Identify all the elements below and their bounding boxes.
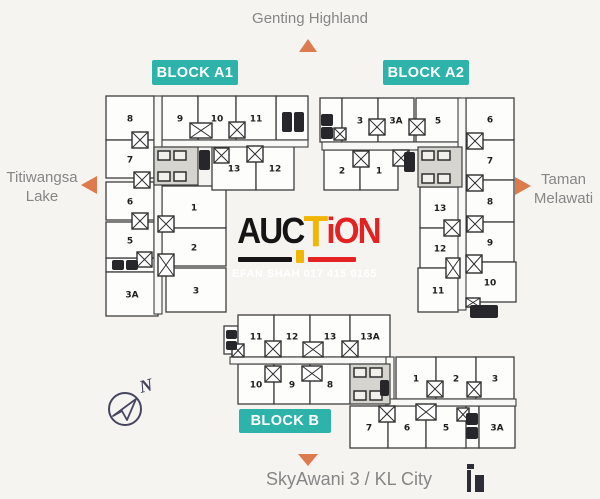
elevator-icon: [112, 260, 124, 270]
unit-label-b-1: 1: [413, 375, 419, 385]
auction-underline-black: [238, 257, 292, 262]
compass-needle-icon: [113, 399, 136, 420]
unit-label-a2-8: 8: [487, 198, 493, 208]
lift-lobby-cell: [438, 151, 450, 160]
unit-label-b-13a: 13A: [360, 333, 380, 343]
elevator-icon: [404, 152, 415, 172]
lift-lobby-cell: [158, 172, 170, 181]
unit-label-a1-5: 5: [127, 237, 133, 247]
elevator-icon: [226, 330, 237, 339]
auction-underline: [232, 257, 362, 265]
taman-line2: Melawati: [527, 190, 600, 209]
unit-label-b-2: 2: [453, 375, 459, 385]
unit-label-a2-7: 7: [487, 157, 493, 167]
elevator-icon: [466, 427, 478, 439]
unit-label-b-12: 12: [286, 333, 299, 343]
block-badge-b: BLOCK B: [239, 409, 331, 433]
unit-label-a2-6: 6: [487, 116, 493, 126]
unit-label-b-7: 7: [366, 424, 372, 434]
lift-lobby-cell: [354, 368, 366, 377]
unit-label-a1-9: 9: [177, 115, 183, 125]
unit-label-a2-10: 10: [484, 279, 497, 289]
unit-label-a1-8: 8: [127, 115, 133, 125]
auction-text-red: iON: [326, 210, 379, 251]
unit-label-a2-12: 12: [434, 245, 447, 255]
unit-label-a2-11: 11: [432, 287, 445, 297]
lift-lobby-cell: [158, 151, 170, 160]
block-badge-a2: BLOCK A2: [383, 60, 469, 85]
lift-lobby-cell: [174, 172, 186, 181]
compass-north-label: N: [136, 374, 155, 397]
compass-circle-icon: [109, 393, 141, 425]
block-badge-a1: BLOCK A1: [152, 60, 238, 85]
taman-line1: Taman: [527, 171, 600, 190]
elevator-icon: [294, 112, 304, 132]
elevator-icon: [321, 127, 333, 139]
unit-label-a2-2: 2: [339, 167, 345, 177]
unit-label-b-11: 11: [250, 333, 263, 343]
titiwangsa-line2: Lake: [2, 188, 82, 207]
skyawani-arrow-icon: [298, 454, 318, 466]
building-tower-left-icon: [467, 470, 471, 492]
site-plan: 87653A12391011131233A5216789101312111112…: [0, 0, 600, 499]
unit-label-a2-3a: 3A: [389, 117, 402, 127]
elevator-icon: [466, 413, 478, 425]
genting-highland-label: Genting Highland: [205, 10, 415, 29]
unit-label-a1-3: 3: [193, 287, 199, 297]
lift-lobby-cell: [438, 174, 450, 183]
lift-lobby-cell: [370, 368, 382, 377]
taman-melawati-label: Taman Melawati: [527, 171, 600, 209]
unit-label-a2-5: 5: [435, 117, 441, 127]
lift-lobby-cell: [422, 174, 434, 183]
elevator-icon: [282, 112, 292, 132]
elevator-icon: [380, 380, 389, 396]
unit-label-a1-1: 1: [191, 204, 197, 214]
genting-arrow-icon: [299, 39, 317, 52]
unit-label-b-9: 9: [289, 381, 295, 391]
unit-label-b-3: 3: [492, 375, 498, 385]
elevator-icon: [321, 114, 333, 126]
unit-label-a1-3a: 3A: [125, 291, 138, 301]
elevator-icon: [226, 341, 237, 350]
titiwangsa-lake-label: Titiwangsa Lake: [2, 169, 82, 207]
corridor-a1: [162, 140, 308, 147]
unit-label-a1-12: 12: [269, 165, 282, 175]
unit-label-a1-7: 7: [127, 156, 133, 166]
unit-label-a2-3: 3: [357, 117, 363, 127]
elevator-icon: [126, 260, 138, 270]
lift-lobby-cell: [354, 391, 366, 400]
auction-underline-red: [308, 257, 356, 262]
unit-label-a2-9: 9: [487, 239, 493, 249]
elevator-icon: [470, 305, 498, 318]
auction-gavel-t: T: [303, 207, 326, 256]
corridor-a1: [154, 96, 162, 314]
unit-label-b-5: 5: [443, 424, 449, 434]
lift-lobby-cell: [174, 151, 186, 160]
elevator-icon: [199, 150, 210, 170]
auction-watermark: AUCTiON EFAN SHAH 017 415 0165: [232, 210, 362, 280]
skyawani-kl-city-label: SkyAwani 3 / KL City: [236, 468, 462, 491]
compass: N: [109, 374, 156, 425]
auction-wordmark: AUCTiON: [237, 210, 357, 254]
corridor-b: [388, 399, 516, 406]
building-icon: [467, 464, 484, 492]
unit-label-a1-11: 11: [250, 115, 263, 125]
unit-label-a1-13: 13: [228, 165, 241, 175]
unit-label-a1-2: 2: [191, 244, 197, 254]
unit-label-a2-13: 13: [434, 204, 447, 214]
unit-label-a1-6: 6: [127, 198, 133, 208]
lift-lobby-cell: [422, 151, 434, 160]
unit-label-b-6: 6: [404, 424, 410, 434]
building-flag-icon: [467, 464, 474, 469]
unit-label-b-13: 13: [324, 333, 337, 343]
titiwangsa-line1: Titiwangsa: [2, 169, 82, 188]
unit-label-a2-1: 1: [376, 167, 382, 177]
corridor-b: [230, 357, 390, 364]
unit-label-b-3a: 3A: [490, 424, 503, 434]
unit-label-b-10: 10: [250, 381, 263, 391]
building-tower-right-icon: [475, 475, 484, 492]
titiwangsa-arrow-icon: [81, 176, 97, 194]
auction-contact-text: EFAN SHAH 017 415 0165: [232, 268, 362, 280]
unit-label-b-8: 8: [327, 381, 333, 391]
auction-text-black: AUC: [237, 210, 303, 251]
